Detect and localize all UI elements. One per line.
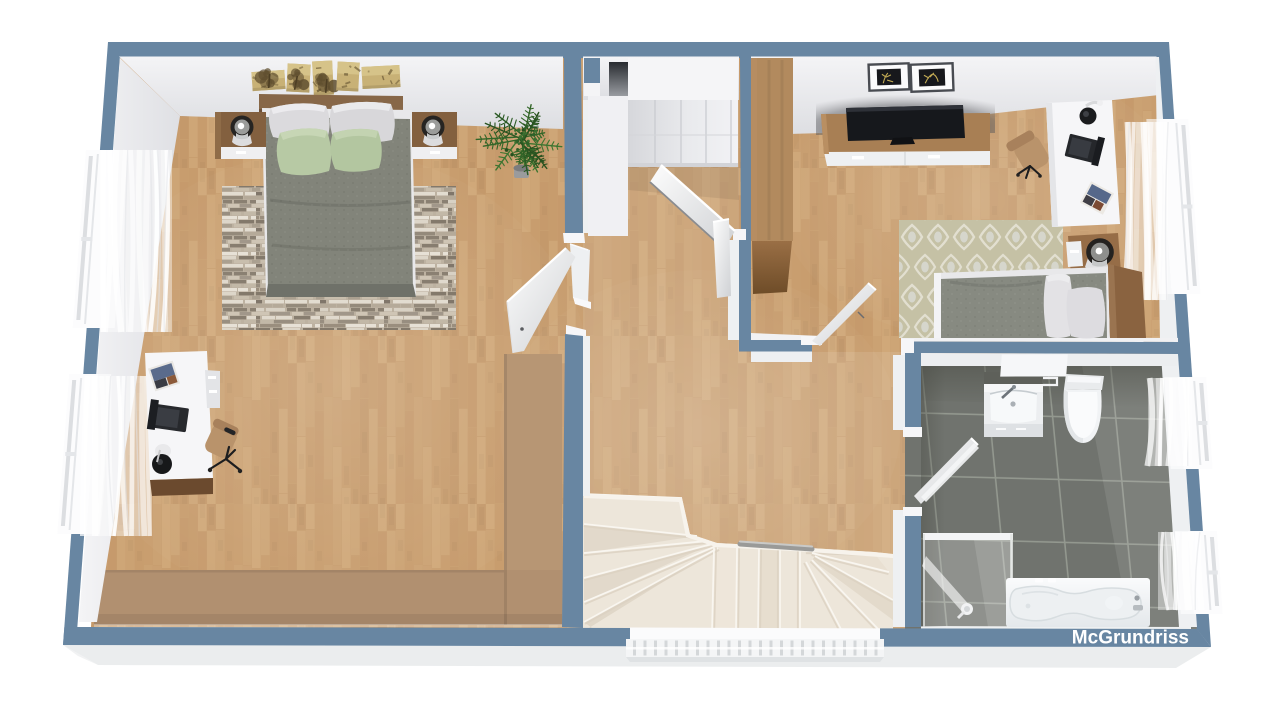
svg-text:McGrundriss: McGrundriss <box>1072 628 1189 649</box>
